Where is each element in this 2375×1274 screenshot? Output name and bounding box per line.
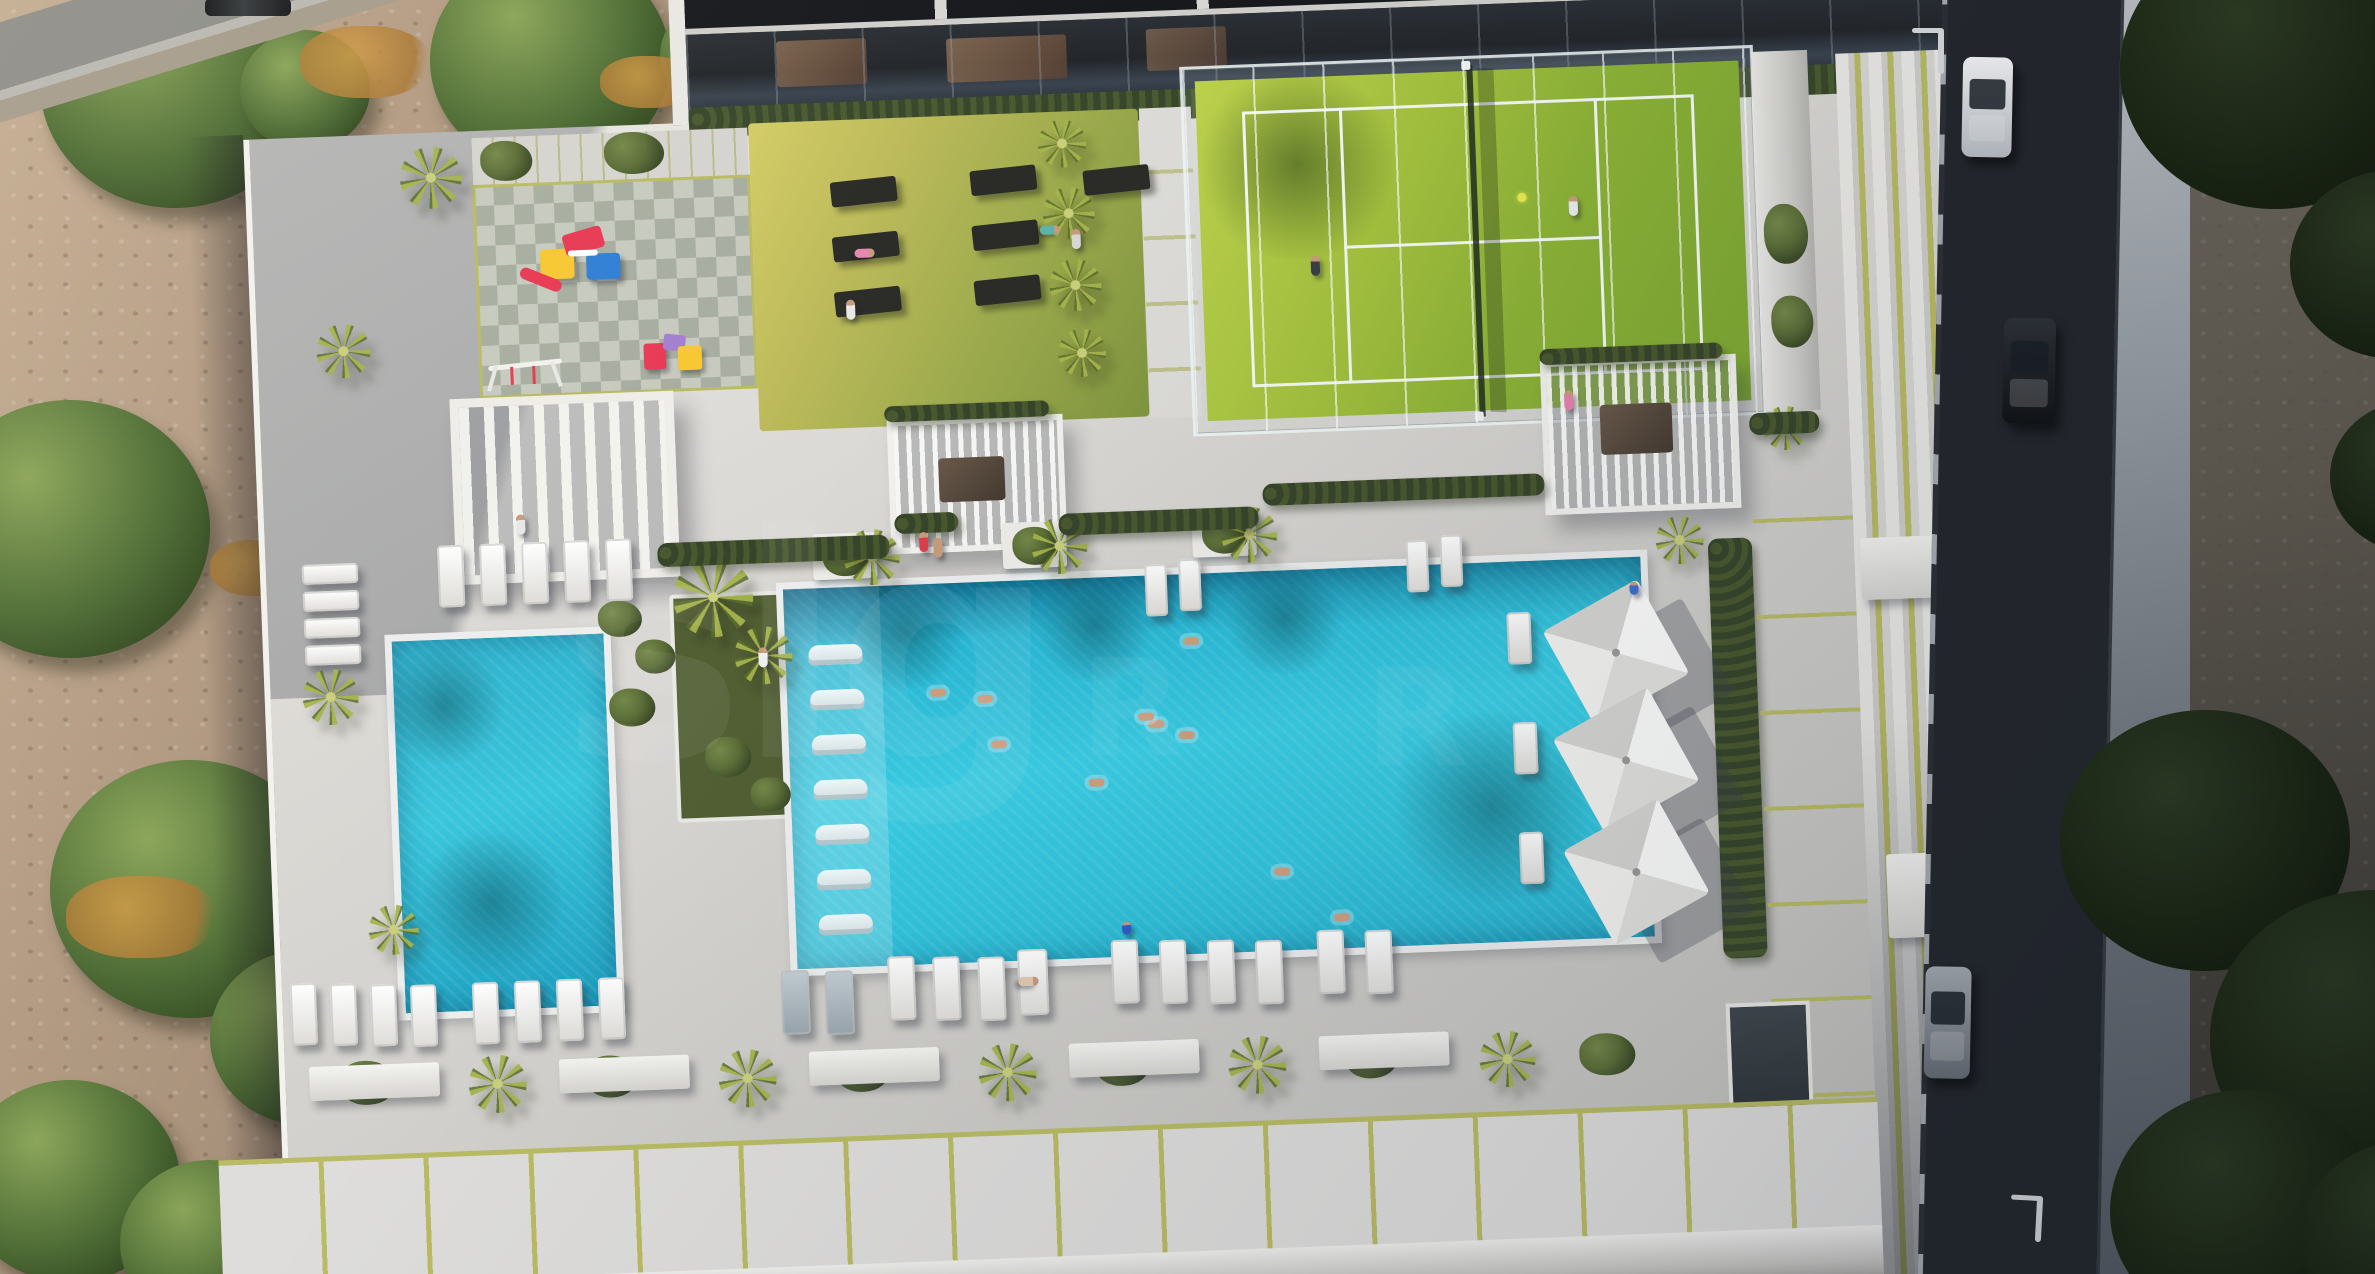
color-grade-overlay [0,0,2375,1274]
aerial-render-scene: sig R R [0,0,2375,1274]
